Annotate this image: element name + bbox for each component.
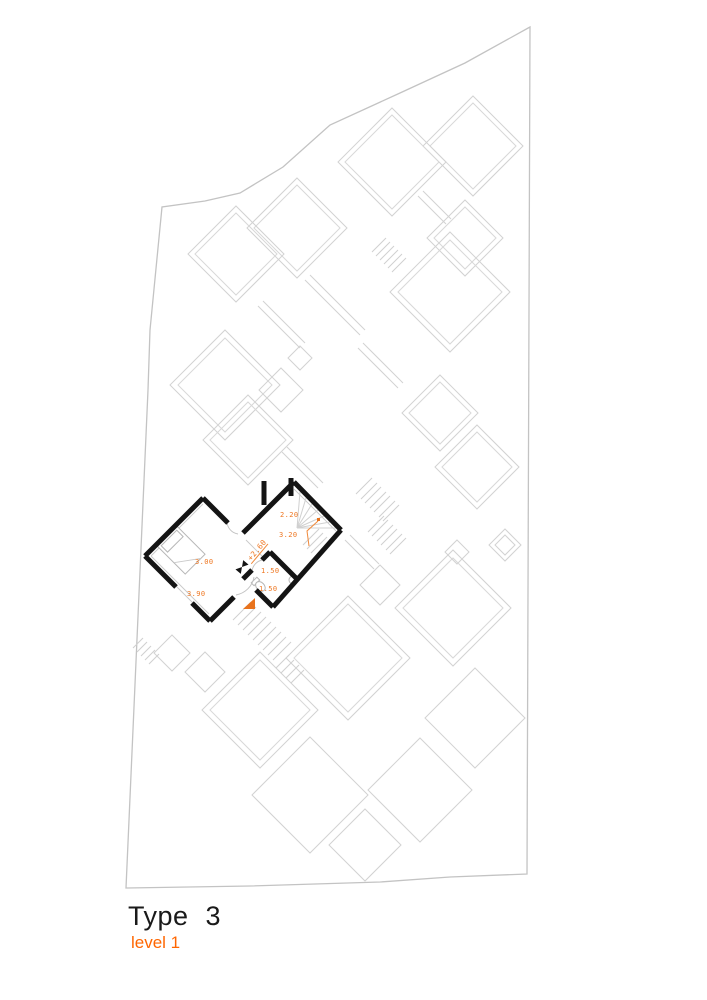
dimension-label: 3.20 <box>279 531 297 539</box>
floor-plan-canvas: +2.60 2.20 3.20 3.00 3.90 1.50 1.50 <box>0 0 707 1000</box>
site-stairs <box>133 238 406 683</box>
title-block: Type 3 level 1 <box>128 901 221 953</box>
dimension-label: 1.50 <box>259 585 277 593</box>
dimension-label: 3.00 <box>195 558 213 566</box>
page-title: Type 3 <box>128 901 221 932</box>
floor-plan-page: +2.60 2.20 3.20 3.00 3.90 1.50 1.50 Type… <box>0 0 707 1000</box>
unit-type3: +2.60 2.20 3.20 3.00 3.90 1.50 1.50 <box>145 478 341 621</box>
stair-start-marker <box>317 518 320 521</box>
page-subtitle: level 1 <box>131 934 221 953</box>
dimension-label: 2.20 <box>280 511 298 519</box>
neighbor-buildings <box>154 96 525 881</box>
dimension-label: 3.90 <box>187 590 205 598</box>
entrance-arrow-icon <box>243 598 255 609</box>
site-boundary <box>126 27 530 888</box>
dimension-label: 1.50 <box>261 567 279 575</box>
